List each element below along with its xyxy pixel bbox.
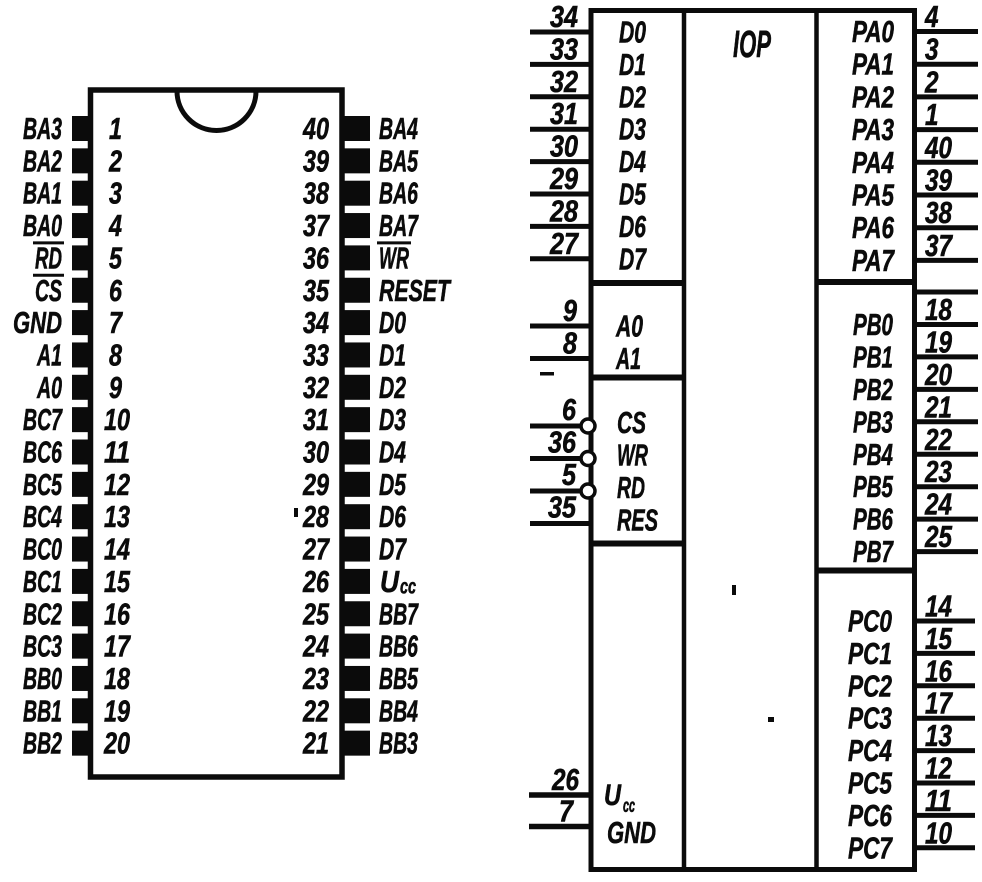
svg-text:PA4: PA4 — [852, 145, 894, 180]
svg-text:PC0: PC0 — [848, 604, 892, 639]
svg-text:39: 39 — [925, 163, 953, 198]
svg-text:PC7: PC7 — [848, 830, 893, 865]
svg-text:18: 18 — [104, 661, 131, 696]
svg-text:CS: CS — [617, 405, 646, 440]
svg-text:35: 35 — [548, 490, 577, 525]
svg-text:9: 9 — [563, 293, 578, 328]
svg-text:CS: CS — [35, 273, 62, 308]
svg-text:26: 26 — [551, 762, 579, 797]
svg-text:RESET: RESET — [379, 273, 452, 308]
svg-text:11: 11 — [104, 435, 130, 470]
svg-text:BA7: BA7 — [379, 208, 419, 243]
svg-text:PB4: PB4 — [853, 437, 893, 472]
svg-text:BA4: BA4 — [379, 111, 418, 146]
svg-text:PA0: PA0 — [852, 14, 894, 49]
svg-text:IOP: IOP — [733, 24, 771, 66]
svg-text:30: 30 — [550, 129, 578, 164]
svg-text:35: 35 — [303, 273, 330, 308]
svg-text:25: 25 — [924, 519, 952, 554]
svg-text:PC2: PC2 — [848, 668, 892, 703]
svg-text:28: 28 — [302, 499, 329, 534]
svg-text:38: 38 — [303, 176, 330, 211]
svg-text:D4: D4 — [379, 435, 406, 470]
svg-text:25: 25 — [302, 596, 329, 631]
svg-text:40: 40 — [924, 130, 952, 165]
svg-text:PC5: PC5 — [848, 766, 893, 801]
svg-text:BB3: BB3 — [379, 726, 418, 761]
svg-text:4: 4 — [108, 208, 122, 243]
svg-text:1: 1 — [109, 111, 122, 146]
svg-text:A0: A0 — [615, 309, 643, 344]
svg-text:12: 12 — [925, 751, 952, 786]
svg-text:A1: A1 — [36, 337, 62, 372]
svg-text:19: 19 — [104, 693, 131, 728]
svg-text:29: 29 — [549, 161, 578, 196]
svg-text:24: 24 — [924, 487, 952, 522]
svg-text:4: 4 — [924, 0, 938, 34]
svg-text:15: 15 — [104, 564, 131, 599]
svg-text:BA0: BA0 — [23, 208, 62, 243]
svg-text:PB0: PB0 — [853, 307, 893, 342]
svg-text:21: 21 — [924, 389, 952, 424]
svg-text:14: 14 — [104, 532, 130, 567]
svg-text:10: 10 — [104, 402, 130, 437]
svg-text:PC3: PC3 — [848, 701, 892, 736]
svg-text:36: 36 — [303, 240, 330, 275]
svg-text:9: 9 — [109, 370, 123, 405]
svg-text:17: 17 — [925, 686, 953, 721]
svg-text:38: 38 — [925, 195, 953, 230]
svg-text:24: 24 — [302, 629, 329, 664]
svg-text:BA5: BA5 — [379, 143, 418, 178]
svg-text:26: 26 — [302, 564, 329, 599]
svg-text:D2: D2 — [379, 370, 406, 405]
svg-text:30: 30 — [303, 435, 329, 470]
svg-text:D5: D5 — [379, 467, 407, 502]
svg-text:RD: RD — [617, 470, 645, 505]
svg-text:1: 1 — [925, 97, 939, 132]
svg-text:PC6: PC6 — [848, 798, 893, 833]
svg-text:PA1: PA1 — [852, 47, 894, 82]
svg-text:BB7: BB7 — [379, 596, 419, 631]
svg-text:5: 5 — [562, 457, 577, 492]
svg-text:D1: D1 — [379, 337, 406, 372]
svg-text:34: 34 — [550, 0, 578, 34]
svg-text:2: 2 — [924, 64, 938, 99]
svg-text:15: 15 — [925, 621, 953, 656]
svg-text:PB3: PB3 — [853, 404, 893, 439]
svg-text:7: 7 — [109, 305, 123, 340]
svg-text:U: U — [380, 564, 400, 599]
svg-text:PA6: PA6 — [852, 210, 895, 245]
svg-text:cc: cc — [400, 575, 416, 598]
svg-text:27: 27 — [549, 226, 579, 261]
svg-text:23: 23 — [924, 454, 952, 489]
svg-text:D4: D4 — [619, 144, 646, 179]
svg-text:3: 3 — [109, 176, 122, 211]
svg-text:BB0: BB0 — [23, 661, 62, 696]
svg-text:WR: WR — [379, 240, 409, 275]
svg-text:21: 21 — [302, 726, 329, 761]
svg-text:D5: D5 — [619, 177, 647, 212]
svg-text:GND: GND — [607, 815, 656, 850]
svg-text:37: 37 — [925, 228, 953, 263]
svg-text:PB2: PB2 — [853, 372, 893, 407]
svg-text:8: 8 — [563, 326, 578, 361]
svg-text:GND: GND — [13, 305, 62, 340]
svg-text:PB1: PB1 — [853, 339, 893, 374]
svg-text:3: 3 — [925, 32, 939, 67]
svg-text:D3: D3 — [619, 112, 646, 147]
svg-text:PB6: PB6 — [853, 502, 893, 537]
svg-text:11: 11 — [925, 783, 952, 818]
svg-text:13: 13 — [104, 499, 130, 534]
svg-text:PA7: PA7 — [852, 243, 895, 278]
svg-text:6: 6 — [562, 392, 577, 427]
svg-text:19: 19 — [925, 324, 953, 359]
svg-text:5: 5 — [109, 240, 123, 275]
svg-text:BC5: BC5 — [23, 467, 62, 502]
svg-text:39: 39 — [303, 143, 330, 178]
svg-text:cc: cc — [623, 796, 635, 817]
svg-text:2: 2 — [108, 143, 122, 178]
svg-text:BC7: BC7 — [23, 402, 63, 437]
svg-text:31: 31 — [550, 96, 578, 131]
svg-text:BC6: BC6 — [23, 435, 62, 470]
svg-text:14: 14 — [925, 589, 952, 624]
svg-text:D0: D0 — [619, 15, 646, 50]
svg-text:BC3: BC3 — [23, 629, 62, 664]
svg-text:U: U — [604, 779, 622, 812]
svg-text:36: 36 — [548, 425, 577, 460]
svg-text:16: 16 — [925, 653, 953, 688]
svg-text:D6: D6 — [619, 209, 647, 244]
svg-text:33: 33 — [550, 31, 578, 66]
svg-text:23: 23 — [302, 661, 329, 696]
svg-text:8: 8 — [109, 337, 123, 372]
svg-text:PA5: PA5 — [852, 178, 895, 213]
svg-text:16: 16 — [104, 596, 131, 631]
svg-text:BC1: BC1 — [23, 564, 62, 599]
svg-text:33: 33 — [303, 337, 329, 372]
svg-text:12: 12 — [104, 467, 130, 502]
svg-text:D7: D7 — [379, 532, 407, 567]
svg-text:32: 32 — [550, 64, 578, 99]
svg-text:PA3: PA3 — [852, 112, 894, 147]
svg-text:BB5: BB5 — [379, 661, 418, 696]
svg-text:20: 20 — [924, 357, 952, 392]
svg-text:BB1: BB1 — [23, 693, 62, 728]
svg-text:BA1: BA1 — [23, 176, 62, 211]
svg-text:D7: D7 — [619, 241, 647, 276]
svg-text:27: 27 — [302, 532, 330, 567]
svg-text:20: 20 — [103, 726, 130, 761]
svg-text:PB5: PB5 — [853, 469, 893, 504]
svg-text:BB6: BB6 — [379, 629, 418, 664]
svg-text:RD: RD — [35, 240, 62, 275]
svg-text:10: 10 — [925, 815, 952, 850]
svg-text:BA2: BA2 — [23, 143, 62, 178]
svg-text:BC2: BC2 — [23, 596, 62, 631]
svg-text:29: 29 — [302, 467, 329, 502]
svg-text:D1: D1 — [619, 47, 646, 82]
svg-text:BA6: BA6 — [379, 176, 418, 211]
svg-text:17: 17 — [104, 629, 131, 664]
svg-text:37: 37 — [303, 208, 330, 243]
svg-text:BB2: BB2 — [23, 726, 62, 761]
svg-text:PC1: PC1 — [848, 636, 892, 671]
svg-text:28: 28 — [549, 193, 578, 228]
svg-text:PA2: PA2 — [852, 79, 894, 114]
svg-text:40: 40 — [302, 111, 329, 146]
svg-text:PC4: PC4 — [848, 733, 892, 768]
svg-text:32: 32 — [303, 370, 329, 405]
svg-text:A0: A0 — [36, 370, 62, 405]
svg-text:A1: A1 — [615, 341, 641, 376]
svg-text:22: 22 — [302, 693, 329, 728]
svg-text:BC4: BC4 — [23, 499, 62, 534]
svg-text:BA3: BA3 — [23, 111, 62, 146]
svg-text:D6: D6 — [379, 499, 407, 534]
svg-text:22: 22 — [924, 422, 952, 457]
svg-text:D2: D2 — [619, 79, 646, 114]
svg-text:D0: D0 — [379, 305, 406, 340]
svg-text:BB4: BB4 — [379, 693, 418, 728]
svg-text:6: 6 — [109, 273, 123, 308]
svg-text:18: 18 — [925, 292, 953, 327]
svg-text:PB7: PB7 — [853, 534, 894, 569]
svg-text:RES: RES — [617, 503, 658, 538]
svg-text:13: 13 — [925, 718, 952, 753]
svg-text:31: 31 — [303, 402, 329, 437]
svg-text:34: 34 — [303, 305, 329, 340]
svg-text:WR: WR — [617, 438, 648, 473]
svg-text:D3: D3 — [379, 402, 406, 437]
svg-text:BC0: BC0 — [23, 532, 62, 567]
svg-text:7: 7 — [559, 794, 574, 829]
